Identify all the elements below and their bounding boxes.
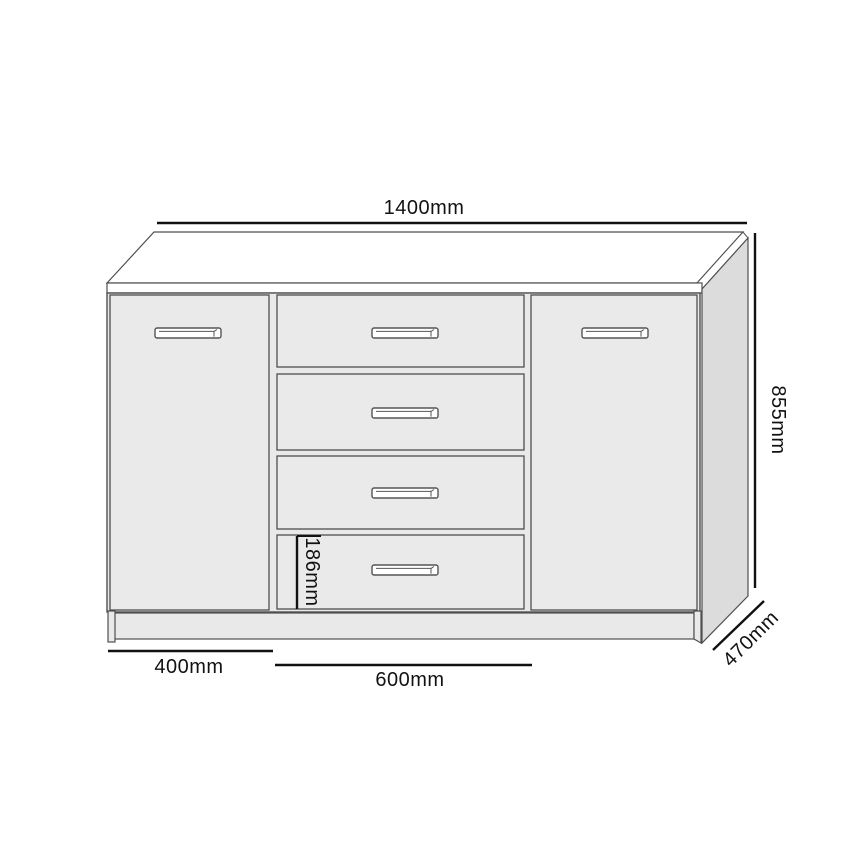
cabinet-side-panel — [702, 238, 748, 643]
right-door — [531, 295, 697, 610]
drawer-height-label: 186mm — [302, 537, 322, 606]
left-door-handle — [155, 328, 221, 338]
drawer-4-handle — [372, 565, 438, 575]
drawer-width-label: 600mm — [375, 670, 444, 690]
door-width-label: 400mm — [154, 657, 223, 677]
left-door — [110, 295, 269, 610]
right-door-handle — [582, 328, 648, 338]
drawer-1-handle — [372, 328, 438, 338]
overall-height-label: 855mm — [768, 385, 788, 454]
drawer-2-handle — [372, 408, 438, 418]
right-foot — [694, 611, 701, 643]
left-foot — [108, 611, 115, 642]
drawer-3-handle — [372, 488, 438, 498]
furniture-dimension-diagram: 1400mm 855mm 470mm 400mm 600mm 186mm — [0, 0, 868, 868]
sideboard-drawing — [0, 0, 868, 868]
cabinet-top-front-edge — [107, 283, 702, 293]
overall-width-label: 1400mm — [384, 198, 465, 218]
cabinet-top-surface — [107, 232, 743, 283]
plinth — [114, 613, 694, 639]
